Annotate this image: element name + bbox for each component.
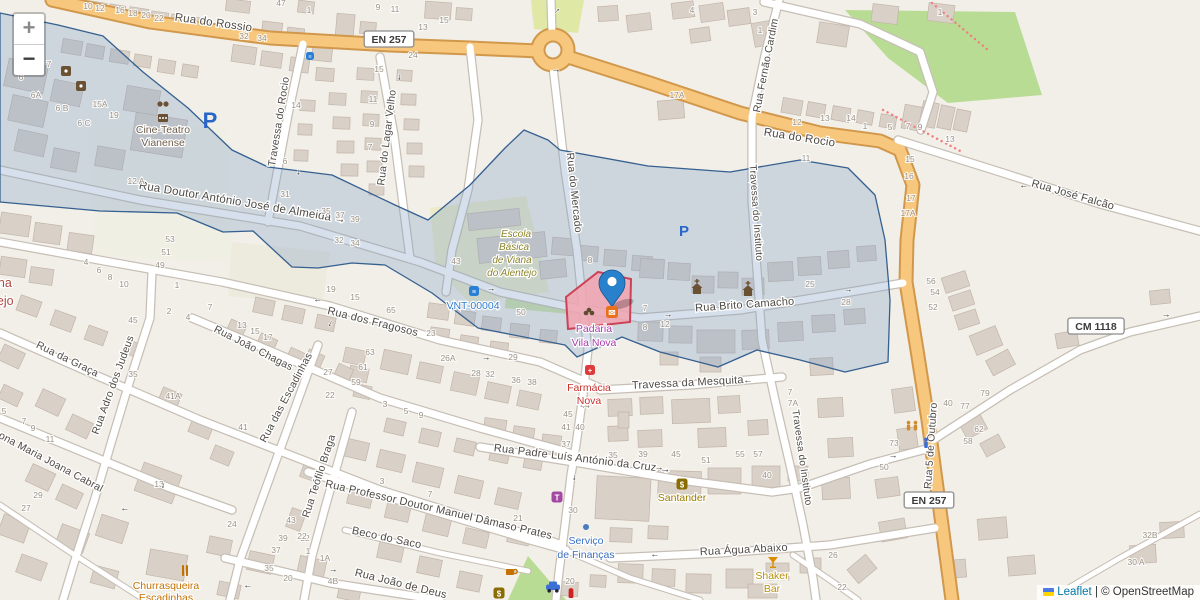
oneway-arrow-icon: → xyxy=(664,309,673,319)
house-number: 34 xyxy=(350,238,360,248)
building xyxy=(357,68,375,81)
house-number: 9 xyxy=(376,2,381,12)
building xyxy=(260,51,283,69)
house-number: 45 xyxy=(563,409,573,419)
leaflet-link[interactable]: Leaflet xyxy=(1057,586,1092,598)
house-number: 4 xyxy=(84,257,89,267)
zoom-in-button[interactable]: + xyxy=(14,14,44,45)
house-number: 35 xyxy=(321,206,331,216)
oneway-arrow-icon: → xyxy=(744,378,753,388)
building xyxy=(181,64,199,78)
house-number: 7 xyxy=(22,416,27,426)
house-number: 12 A xyxy=(127,176,144,186)
house-number: 7 xyxy=(643,303,648,313)
building xyxy=(699,2,725,22)
building xyxy=(698,428,727,448)
house-number: 5 xyxy=(888,122,893,132)
house-number: 12 xyxy=(660,319,670,329)
place-name-fragment-label: ntejo xyxy=(0,294,14,308)
padaria-vila-nova-label: Vila Nova xyxy=(572,337,617,349)
building xyxy=(333,117,350,130)
building xyxy=(401,94,416,106)
house-number: 21 xyxy=(513,513,523,523)
building xyxy=(781,97,803,115)
house-number: 3 xyxy=(383,399,388,409)
house-number: 16 xyxy=(115,5,125,15)
oneway-arrow-icon: → xyxy=(655,462,664,472)
house-number: 28 xyxy=(471,368,481,378)
svg-text:✉: ✉ xyxy=(608,308,616,318)
house-number: 14 xyxy=(291,100,301,110)
house-number: 43 xyxy=(451,256,461,266)
house-number: 30 A xyxy=(1127,557,1144,567)
dot-icon xyxy=(583,524,589,530)
churrasqueira-escadinhas-label: Churrasqueira xyxy=(133,580,200,592)
shaker-bar-label: Bar xyxy=(764,583,781,595)
house-number: 22 xyxy=(837,582,847,592)
house-number: 12 xyxy=(792,117,802,127)
building xyxy=(871,3,899,24)
house-number: 22 xyxy=(154,13,164,23)
building xyxy=(828,437,854,457)
oneway-arrow-icon: → xyxy=(1162,309,1171,319)
building xyxy=(300,100,316,112)
house-number: 63 xyxy=(365,347,375,357)
map-canvas: Rua do RossioRua do RocioRua Fernão Card… xyxy=(0,0,1200,600)
building xyxy=(672,398,711,423)
film-icon xyxy=(158,114,168,122)
road-shield-label: EN 257 xyxy=(371,34,406,46)
house-number: 23 xyxy=(426,328,436,338)
house-number: 11 xyxy=(802,153,811,163)
building xyxy=(598,5,619,21)
building xyxy=(329,93,347,106)
house-number: 77 xyxy=(960,401,970,411)
house-number: 52 xyxy=(928,302,938,312)
building xyxy=(231,44,257,64)
house-number: 61 xyxy=(358,362,368,372)
poi-icon: ✉ xyxy=(606,306,618,318)
house-number: 15 xyxy=(374,64,384,74)
house-number: 13 xyxy=(237,320,247,330)
house-number: 73 xyxy=(889,438,899,448)
map-viewport[interactable]: Rua do RossioRua do RocioRua Fernão Card… xyxy=(0,0,1200,600)
house-number: 6 xyxy=(283,156,288,166)
house-number: 20 xyxy=(565,576,575,586)
house-number: 20 xyxy=(141,10,151,20)
house-number: 3 xyxy=(753,7,758,17)
house-number: 7A xyxy=(788,398,799,408)
house-number: 10 xyxy=(119,279,129,289)
svg-text:$: $ xyxy=(497,589,502,598)
house-number: 29 xyxy=(508,352,518,362)
oneway-arrow-icon: → xyxy=(889,450,898,460)
house-number: 26A xyxy=(440,353,455,363)
shaker-bar-label: Shaker xyxy=(755,570,789,582)
house-number: 5 xyxy=(404,406,409,416)
house-number: 17A xyxy=(669,90,684,100)
house-number: 3 xyxy=(380,476,385,486)
svg-text:P: P xyxy=(679,223,689,240)
oneway-arrow-icon: → xyxy=(487,283,496,293)
cine-teatro-label: Cine-Teatro xyxy=(136,124,190,136)
servico-de-financas-label: Serviço xyxy=(568,535,603,547)
house-number: 1 xyxy=(863,121,868,131)
oneway-arrow-icon: → xyxy=(244,583,253,593)
oneway-arrow-icon: → xyxy=(396,73,406,82)
house-number: 41 xyxy=(238,422,248,432)
building xyxy=(686,574,711,593)
oneway-arrow-icon: → xyxy=(314,297,323,307)
house-number: 35 xyxy=(264,563,274,573)
house-number: 41 xyxy=(561,422,571,432)
house-number: 35 xyxy=(608,450,618,460)
building xyxy=(298,124,312,135)
house-number: 4 xyxy=(690,5,695,15)
oneway-arrow-icon: → xyxy=(552,64,561,74)
oneway-arrow-icon: → xyxy=(844,284,853,294)
house-number: 39 xyxy=(278,533,288,543)
house-number: 29 xyxy=(33,490,43,500)
place-name-fragment-label: iana xyxy=(0,276,12,290)
oneway-arrow-icon: → xyxy=(651,552,660,562)
building xyxy=(657,99,685,120)
oneway-arrow-icon: → xyxy=(1020,183,1029,193)
house-number: 22 xyxy=(325,390,335,400)
house-number: 27 xyxy=(21,503,31,513)
house-number: 1A xyxy=(320,553,331,563)
house-number: 8 xyxy=(643,322,648,332)
building xyxy=(337,141,354,153)
house-number: 34 xyxy=(257,33,267,43)
house-number: 2 xyxy=(167,306,172,316)
house-number: 55 xyxy=(735,449,745,459)
house-number: 7 xyxy=(47,59,52,69)
house-number: 62 xyxy=(974,424,984,434)
house-number: 20 xyxy=(283,573,293,583)
house-number: 14 xyxy=(846,113,856,123)
attribution-separator: | xyxy=(1092,586,1101,598)
house-number: 39 xyxy=(638,449,648,459)
house-number: 25 xyxy=(805,279,815,289)
building xyxy=(407,143,422,154)
house-number: 18 xyxy=(128,8,138,18)
house-number: 40 xyxy=(762,470,772,480)
poi-icon: T xyxy=(552,492,563,503)
house-number: 16 xyxy=(904,171,914,181)
house-number: 1 xyxy=(307,5,312,15)
house-number: 32 xyxy=(485,369,495,379)
house-number: 9 xyxy=(31,423,36,433)
building xyxy=(1007,555,1036,576)
ukraine-flag-icon xyxy=(1043,588,1054,596)
building xyxy=(294,150,308,161)
house-number: 15A xyxy=(92,99,107,109)
house-number: 9 xyxy=(419,410,424,420)
svg-text:T: T xyxy=(555,493,560,502)
house-number: 40 xyxy=(575,422,585,432)
house-number: 43 xyxy=(286,515,296,525)
house-number: 31 xyxy=(280,189,290,199)
building xyxy=(595,476,651,522)
svg-text:+: + xyxy=(588,366,592,375)
building xyxy=(817,22,850,47)
house-number: 11 xyxy=(391,4,400,14)
poi-icon: $ xyxy=(677,479,688,490)
building xyxy=(0,212,31,237)
escola-basica-label: Básica xyxy=(499,242,529,253)
bus-stop-ref-label: VNT-00004 xyxy=(446,300,499,312)
house-number: 50 xyxy=(516,307,526,317)
house-number: 7 xyxy=(788,387,793,397)
house-number: 4 xyxy=(186,312,191,322)
p-icon: P xyxy=(203,108,218,133)
building xyxy=(618,412,629,428)
house-number: 32 xyxy=(239,31,249,41)
house-number: 13 xyxy=(418,22,428,32)
escola-basica-label: do Alentejo xyxy=(487,268,537,279)
house-number: 15 xyxy=(905,154,915,164)
house-number: 28 xyxy=(841,297,851,307)
house-number: 13 xyxy=(945,134,955,144)
building xyxy=(640,397,664,415)
house-number: 17 xyxy=(906,193,916,203)
house-number: 35 xyxy=(128,369,138,379)
oneway-arrow-icon: → xyxy=(570,472,581,483)
building xyxy=(875,476,900,498)
house-number: 1 xyxy=(758,25,763,35)
zoom-control: + − xyxy=(12,12,46,77)
building xyxy=(404,119,419,131)
house-number: 10 xyxy=(83,1,93,11)
house-number: 59 xyxy=(351,377,361,387)
road-shield-label: EN 257 xyxy=(911,495,946,507)
house-number: 22 xyxy=(297,531,307,541)
svg-text:P: P xyxy=(203,108,218,133)
house-number: 54 xyxy=(930,287,940,297)
building xyxy=(409,166,424,177)
attribution-bar: Leaflet | © OpenStreetMap xyxy=(1037,585,1200,600)
svg-text:≡: ≡ xyxy=(472,287,476,296)
poi-icon: $ xyxy=(494,588,505,599)
building xyxy=(977,517,1008,540)
building xyxy=(29,266,54,285)
farmacia-nova-label: Farmácia xyxy=(567,382,611,394)
building xyxy=(316,67,335,81)
house-number: 24 xyxy=(227,519,237,529)
house-number: 40 xyxy=(943,398,953,408)
cine-teatro-label: Vianense xyxy=(141,137,185,149)
escola-basica-label: Escola xyxy=(501,229,531,240)
house-number: 56 xyxy=(926,276,936,286)
house-number: 24 xyxy=(408,50,418,60)
house-number: 7 xyxy=(368,142,373,152)
person-icon xyxy=(924,438,928,448)
oneway-arrow-icon: → xyxy=(482,352,491,362)
hydrant-icon xyxy=(569,588,574,598)
house-number: 11 xyxy=(46,434,55,444)
building xyxy=(818,397,844,417)
santander-label: Santander xyxy=(658,492,707,504)
house-number: 45 xyxy=(671,449,681,459)
padaria-vila-nova-label: Padaria xyxy=(576,323,612,335)
building xyxy=(590,575,607,588)
road-shield-label: CM 1118 xyxy=(1075,321,1117,333)
house-number: 50 xyxy=(879,462,889,472)
house-number: 9 xyxy=(370,119,375,129)
building xyxy=(1149,289,1170,305)
house-number: 8 xyxy=(108,272,113,282)
house-number: 5 xyxy=(2,406,7,416)
oneway-arrow-icon: → xyxy=(295,168,305,177)
house-number: 36 xyxy=(511,375,521,385)
house-number: 39 xyxy=(350,214,360,224)
poi-icon: + xyxy=(585,365,595,375)
house-number: 79 xyxy=(980,388,990,398)
house-number: 1 xyxy=(306,546,311,556)
house-number: 1 xyxy=(938,7,943,17)
building xyxy=(648,526,668,540)
house-number: 19 xyxy=(109,110,119,120)
house-number: 7 xyxy=(906,121,911,131)
farmacia-nova-label: Nova xyxy=(577,395,602,407)
p-icon: P xyxy=(679,223,689,240)
building xyxy=(748,419,769,435)
house-number: 57 xyxy=(753,449,763,459)
house-number: 9 xyxy=(918,122,923,132)
house-number: 30 xyxy=(568,505,578,515)
building xyxy=(727,8,751,27)
house-number: 15 xyxy=(250,326,260,336)
house-number: 26 xyxy=(828,550,838,560)
map-marker-dot xyxy=(607,277,616,286)
building xyxy=(689,27,711,44)
house-number: 4B xyxy=(328,576,339,586)
oneway-arrow-icon: → xyxy=(121,506,130,516)
house-number: 6 C xyxy=(77,118,90,128)
house-number: 51 xyxy=(701,455,711,465)
house-number: 53 xyxy=(165,234,175,244)
escola-basica-label: de Viana xyxy=(492,255,532,266)
house-number: 6 B xyxy=(56,103,69,113)
house-number: 12 xyxy=(95,3,105,13)
house-number: 37 xyxy=(335,210,345,220)
house-number: 65 xyxy=(386,305,396,315)
house-number: 45 xyxy=(128,315,138,325)
house-number: 11 xyxy=(369,94,378,104)
house-number: 15 xyxy=(439,15,449,25)
building xyxy=(718,395,741,413)
building xyxy=(341,164,358,176)
osm-copyright[interactable]: © OpenStreetMap xyxy=(1101,586,1194,598)
house-number: 19 xyxy=(326,284,336,294)
building xyxy=(456,7,473,20)
house-number: 1 xyxy=(175,280,180,290)
house-number: 38 xyxy=(527,377,537,387)
museum-icon xyxy=(76,81,86,91)
house-number: 32 xyxy=(334,235,344,245)
building xyxy=(33,222,62,245)
house-number: 7 xyxy=(208,302,213,312)
house-number: 58 xyxy=(963,436,973,446)
house-number: 6A xyxy=(31,90,42,100)
house-number: 41A xyxy=(165,391,180,401)
house-number: 8 xyxy=(588,255,593,265)
museum-icon xyxy=(61,66,71,76)
house-number: 49 xyxy=(155,260,165,270)
house-number: 51 xyxy=(161,247,171,257)
zoom-out-button[interactable]: − xyxy=(14,45,44,75)
house-number: 47 xyxy=(276,0,286,8)
building xyxy=(610,528,632,543)
building xyxy=(626,13,652,33)
house-number: 32B xyxy=(1142,530,1157,540)
svg-text:$: $ xyxy=(680,480,685,489)
building xyxy=(0,256,27,277)
house-number: 37 xyxy=(271,545,281,555)
house-number: 17 xyxy=(263,332,273,342)
house-number: 7 xyxy=(428,489,433,499)
building xyxy=(157,59,176,74)
poi-icon: ≡ xyxy=(306,52,314,60)
house-number: 17A xyxy=(900,208,915,218)
churrasqueira-escadinhas-label: Escadinhas xyxy=(139,592,193,600)
building xyxy=(638,430,663,448)
house-number: 13 xyxy=(820,113,830,123)
house-number: 27 xyxy=(323,367,333,377)
oneway-arrow-icon: → xyxy=(329,564,338,574)
building xyxy=(891,387,915,414)
road xyxy=(551,0,552,33)
poi-icon: ≡ xyxy=(469,286,479,296)
house-number: 6 xyxy=(97,265,102,275)
house-number: 37 xyxy=(561,439,571,449)
servico-de-financas-label: de Finanças xyxy=(557,549,614,561)
house-number: 15 xyxy=(350,292,360,302)
